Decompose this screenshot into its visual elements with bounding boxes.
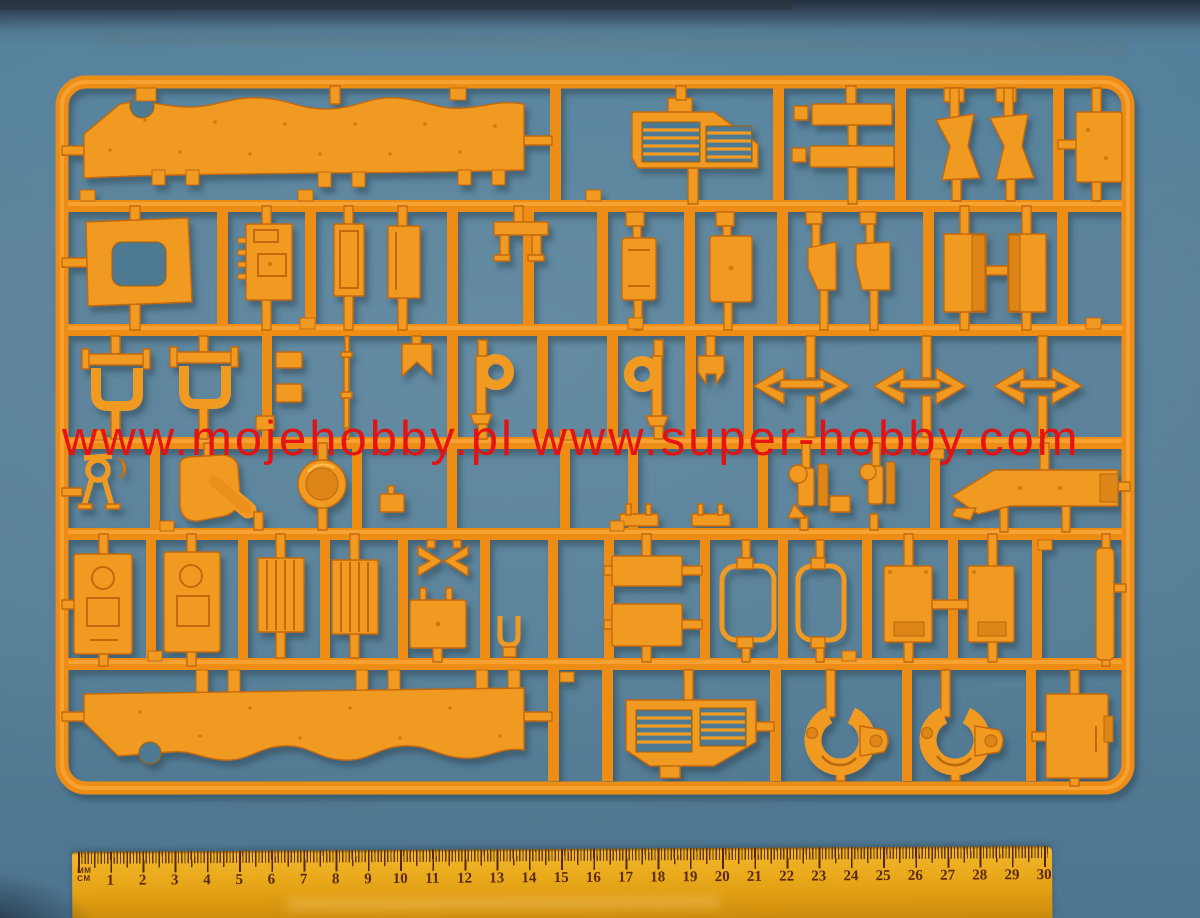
ruler-number: 18 xyxy=(650,869,665,886)
ruler-number: 10 xyxy=(393,871,408,888)
ruler-number: 17 xyxy=(618,870,633,887)
ruler-number: 8 xyxy=(332,871,340,888)
ruler-number: 4 xyxy=(203,872,211,889)
ruler-number: 7 xyxy=(300,872,308,889)
ruler-number: 9 xyxy=(364,871,372,888)
part-hull-panel xyxy=(1058,88,1122,201)
part-grille-lower xyxy=(626,670,774,778)
ruler-number: 15 xyxy=(554,870,569,887)
part-armor-blocks xyxy=(944,206,1046,330)
ruler: MM CM 1234567891011121314151617181920212… xyxy=(72,846,1052,918)
ruler-number: 16 xyxy=(586,870,601,887)
ruler-number: 27 xyxy=(940,868,955,885)
part-windshields xyxy=(936,88,1034,201)
ruler-number: 23 xyxy=(811,868,826,885)
part-vertical-panels xyxy=(334,206,420,330)
ruler-number: 26 xyxy=(908,868,923,885)
ruler-number: 30 xyxy=(1037,867,1052,884)
part-bracket-table xyxy=(494,206,548,261)
ruler-number: 12 xyxy=(457,871,472,888)
part-arrows-box-clip xyxy=(410,540,518,662)
ruler-number: 25 xyxy=(876,868,891,885)
part-angled-brackets xyxy=(806,212,890,330)
ruler-number: 11 xyxy=(425,871,439,888)
watermark-text: www.mojehobby.pl www.super-hobby.com xyxy=(62,411,1081,467)
ruler-number: 3 xyxy=(171,872,179,889)
photo-stage: www.mojehobby.pl www.super-hobby.com MM … xyxy=(0,0,1200,918)
ruler-number: 21 xyxy=(747,869,762,886)
part-crew-doors xyxy=(62,534,220,666)
part-grille-upper xyxy=(632,86,758,204)
part-window-frame xyxy=(62,206,192,330)
part-detail-box xyxy=(238,206,292,330)
ruler-number: 24 xyxy=(843,868,858,885)
ruler-number: 1 xyxy=(107,873,115,890)
part-track-bars xyxy=(792,86,894,204)
part-stacked-plates xyxy=(604,534,702,662)
part-equipment-box xyxy=(1032,670,1113,786)
ruler-number: 19 xyxy=(682,869,697,886)
ruler-number: 5 xyxy=(235,872,243,889)
ruler-number: 28 xyxy=(972,867,987,884)
ruler-number: 13 xyxy=(489,870,504,887)
ruler-number: 14 xyxy=(521,870,536,887)
ruler-number: 6 xyxy=(268,872,276,889)
corner-shadow xyxy=(0,872,98,918)
ruler-number: 22 xyxy=(779,869,794,886)
ruler-number: 2 xyxy=(139,873,147,890)
ruler-number: 20 xyxy=(715,869,730,886)
ruler-number: 29 xyxy=(1004,867,1019,884)
part-ribbed-panels xyxy=(258,534,378,658)
part-side-skirt-lower xyxy=(62,670,552,764)
